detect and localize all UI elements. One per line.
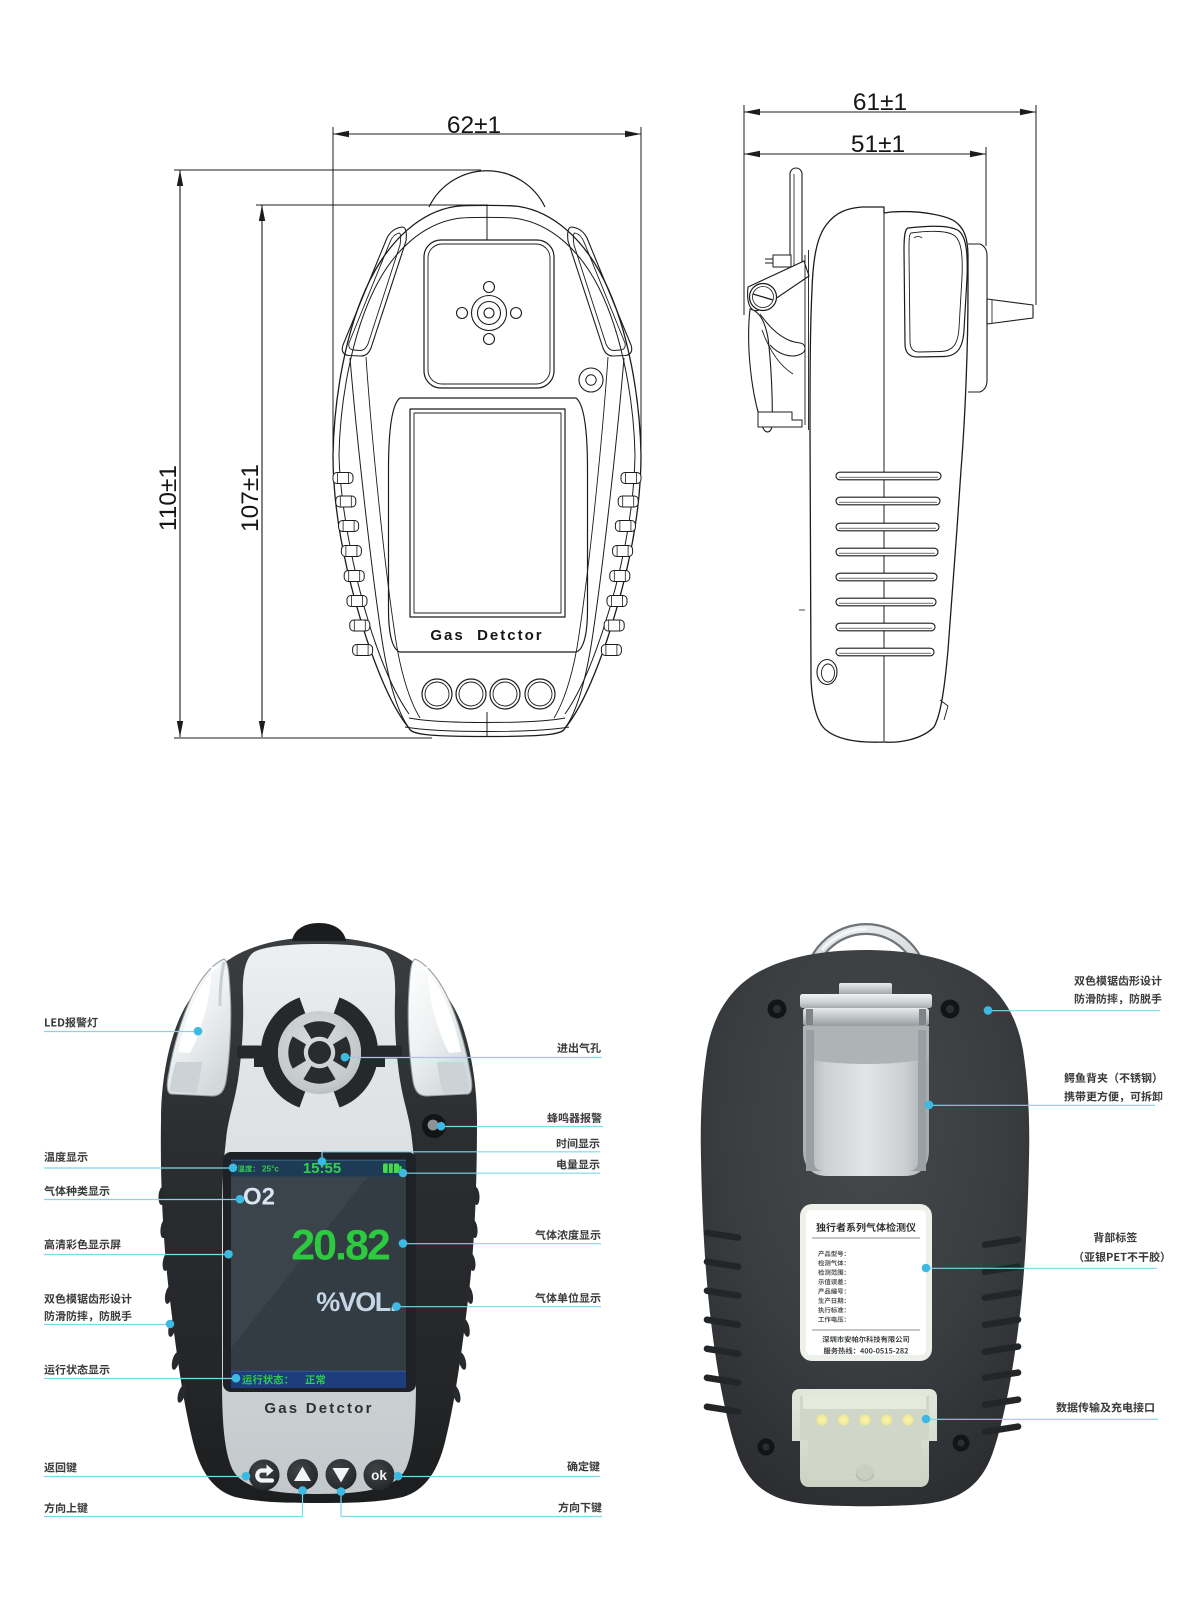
svg-text:62±1: 62±1 (447, 112, 501, 139)
svg-text:Gas Detctor: Gas Detctor (264, 1400, 373, 1417)
svg-text:ok: ok (371, 1468, 387, 1483)
svg-text:O2: O2 (243, 1184, 275, 1211)
svg-text:Gas Detctor: Gas Detctor (430, 627, 543, 644)
svg-text:%VOL.: %VOL. (316, 1287, 396, 1317)
svg-text:107±1: 107±1 (237, 464, 264, 532)
svg-text:110±1: 110±1 (155, 465, 182, 531)
svg-text:20.82: 20.82 (291, 1222, 390, 1270)
svg-text:25°c: 25°c (262, 1165, 279, 1174)
